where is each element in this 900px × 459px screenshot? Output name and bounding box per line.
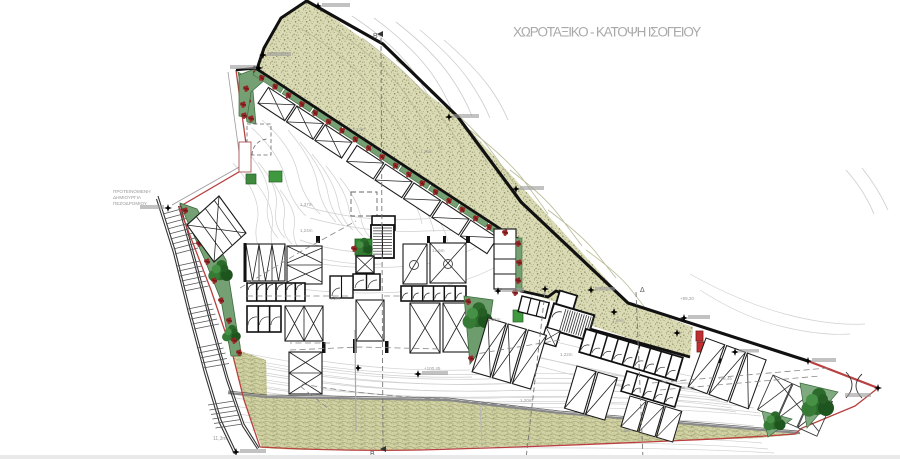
svg-text:1,22m: 1,22m [560, 352, 573, 357]
svg-text:+100,45: +100,45 [424, 366, 441, 371]
svg-text:Δ: Δ [640, 287, 645, 294]
svg-text:1,26m: 1,26m [488, 317, 501, 322]
svg-text:1,24m: 1,24m [300, 228, 313, 233]
svg-text:+99,20: +99,20 [680, 296, 694, 301]
svg-text:1,20m: 1,20m [520, 398, 533, 403]
svg-text:ΧΩΡΟΤΑΞΙΚΟ - ΚΑΤΟΨΗ ΙΣΟΓΕΙΟΥ: ΧΩΡΟΤΑΞΙΚΟ - ΚΑΤΟΨΗ ΙΣΟΓΕΙΟΥ [513, 25, 701, 40]
svg-text:11,3m: 11,3m [213, 436, 227, 442]
svg-text:ΠΕΖΟΔΡΟΜΙΟΥ: ΠΕΖΟΔΡΟΜΙΟΥ [113, 201, 147, 206]
svg-text:ΔΗΜΙΟΥΡΓΙΑ: ΔΗΜΙΟΥΡΓΙΑ [113, 195, 142, 200]
svg-text:12,6m: 12,6m [432, 248, 445, 253]
svg-text:1,37m: 1,37m [300, 202, 313, 207]
svg-text:+98,45: +98,45 [718, 376, 732, 381]
svg-text:1,25m: 1,25m [420, 149, 433, 154]
svg-text:1,20m: 1,20m [620, 428, 633, 433]
svg-text:1,2m: 1,2m [330, 296, 340, 301]
svg-text:1,20m: 1,20m [612, 318, 625, 323]
svg-text:1,23m: 1,23m [352, 127, 365, 132]
svg-text:ΠΡΟΤΕΙΝΟΜΕΝΗ: ΠΡΟΤΕΙΝΟΜΕΝΗ [113, 189, 151, 194]
